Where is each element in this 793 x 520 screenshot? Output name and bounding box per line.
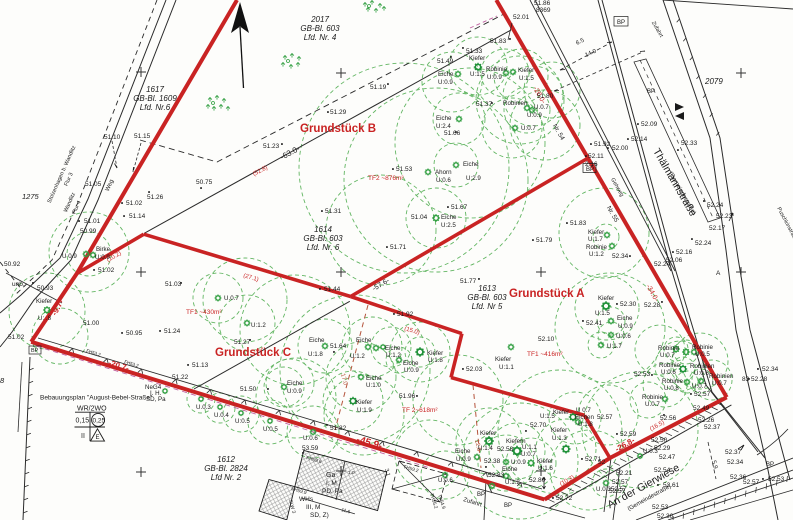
svg-text:U:0.5: U:0.5	[235, 418, 250, 425]
svg-text:Robinien: Robinien	[709, 373, 734, 380]
svg-text:U:0.9: U:0.9	[95, 254, 110, 261]
svg-text:52.14: 52.14	[631, 136, 648, 143]
svg-text:U:0.7: U:0.7	[712, 380, 727, 387]
svg-text:U:0.7: U:0.7	[521, 451, 536, 458]
svg-text:51.49: 51.49	[437, 58, 454, 65]
svg-text:GB-Bl. 2824: GB-Bl. 2824	[204, 464, 248, 473]
svg-text:U:0.9: U:0.9	[404, 367, 419, 374]
svg-text:U:0.9: U:0.9	[618, 323, 633, 330]
svg-text:Eiche: Eiche	[366, 375, 382, 382]
svg-text:Kiefer: Kiefer	[480, 430, 496, 437]
svg-text:52.36: 52.36	[657, 513, 674, 520]
svg-text:51.33: 51.33	[466, 48, 483, 55]
svg-text:52.56: 52.56	[660, 415, 677, 422]
svg-text:U:1.8: U:1.8	[308, 351, 323, 358]
svg-text:51.02: 51.02	[126, 200, 143, 207]
svg-text:52: 52	[598, 459, 606, 466]
svg-text:U:0.3: U:0.3	[643, 448, 658, 455]
svg-text:Lfd. Nr. 6: Lfd. Nr. 6	[307, 243, 340, 252]
svg-text:Grundstück A: Grundstück A	[509, 288, 585, 300]
svg-text:U.1.1: U.1.1	[522, 444, 537, 451]
svg-text:51.22: 51.22	[172, 374, 189, 381]
svg-text:U:1.7: U:1.7	[607, 343, 622, 350]
svg-text:52.03: 52.03	[466, 366, 483, 373]
svg-text:52.28: 52.28	[644, 302, 661, 309]
svg-text:Eiche: Eiche	[463, 161, 479, 168]
svg-text:Kiefer: Kiefer	[36, 298, 52, 305]
svg-text:52.72: 52.72	[556, 495, 573, 502]
svg-text:WHs: WHs	[299, 496, 314, 503]
svg-text:51.37: 51.37	[476, 101, 493, 108]
svg-text:Eiche: Eiche	[403, 360, 419, 367]
svg-text:GB-Bl. 603: GB-Bl. 603	[303, 234, 343, 243]
svg-text:GB-Bl. 1609: GB-Bl. 1609	[133, 94, 177, 103]
svg-text:Bebauungsplan "August-Bebel-St: Bebauungsplan "August-Bebel-Straße"	[40, 395, 153, 402]
svg-text:8369: 8369	[536, 7, 551, 14]
svg-text:1612: 1612	[217, 455, 235, 464]
svg-text:50.99: 50.99	[80, 228, 97, 235]
svg-text:51.53: 51.53	[396, 166, 413, 173]
svg-text:Grundstück B: Grundstück B	[300, 123, 376, 135]
svg-text:50.93: 50.93	[37, 285, 54, 292]
svg-text:TF1 ~430m²: TF1 ~430m²	[186, 309, 222, 316]
svg-text:Kiefer: Kiefer	[598, 295, 614, 302]
svg-text:2017: 2017	[310, 15, 329, 24]
svg-text:52.49: 52.49	[693, 405, 710, 412]
svg-text:TF 2~618m²: TF 2~618m²	[402, 407, 438, 414]
svg-text:51.71: 51.71	[390, 244, 407, 251]
svg-text:Kiefer: Kiefer	[537, 458, 553, 465]
svg-text:52.50: 52.50	[651, 437, 668, 444]
svg-text:Ga: Ga	[326, 472, 335, 479]
svg-text:U:0.7: U:0.7	[660, 352, 675, 359]
svg-text:52.24: 52.24	[707, 202, 724, 209]
svg-text:Robinien: Robinien	[503, 100, 528, 107]
svg-text:51.92: 51.92	[397, 311, 414, 318]
svg-text:52.59: 52.59	[620, 431, 637, 438]
svg-text:SD, Z): SD, Z)	[310, 512, 329, 519]
svg-text:51.23: 51.23	[263, 143, 280, 150]
svg-text:52.00: 52.00	[612, 145, 629, 152]
svg-text:U:1.5: U:1.5	[470, 71, 485, 78]
svg-text:U.0.6: U.0.6	[303, 435, 318, 442]
svg-text:52.53: 52.53	[634, 371, 651, 378]
svg-text:51.26: 51.26	[147, 194, 164, 201]
svg-text:unb.: unb.	[12, 281, 25, 288]
svg-text:PD, Pa: PD, Pa	[322, 488, 343, 495]
svg-text:Eiche: Eiche	[455, 448, 471, 455]
svg-text:U:0.6: U:0.6	[616, 333, 631, 340]
svg-text:51.10: 51.10	[104, 134, 121, 141]
svg-text:52.37: 52.37	[704, 424, 721, 431]
svg-text:U:2.9: U:2.9	[466, 175, 481, 182]
svg-text:52.26: 52.26	[698, 417, 715, 424]
svg-text:U.0.7: U.0.7	[534, 104, 549, 111]
svg-text:Lfd. Nr.6: Lfd. Nr.6	[140, 103, 171, 112]
svg-text:SD, Pa: SD, Pa	[146, 396, 166, 403]
svg-text:BP: BP	[766, 462, 774, 468]
svg-text:52.09: 52.09	[641, 121, 658, 128]
svg-text:Robinie: Robinie	[662, 378, 684, 385]
svg-text:52.54: 52.54	[654, 467, 671, 474]
svg-text:U:2.5: U:2.5	[441, 222, 456, 229]
svg-text:Robinie: Robinie	[642, 394, 664, 401]
svg-text:51.24: 51.24	[164, 328, 181, 335]
svg-text:U:0.6: U:0.6	[438, 477, 453, 484]
svg-text:52.57: 52.57	[597, 414, 613, 421]
svg-text:51.01: 51.01	[84, 218, 101, 225]
svg-text:U:1.2: U:1.2	[251, 322, 266, 329]
svg-text:Lfd. Nr. 4: Lfd. Nr. 4	[304, 33, 337, 42]
svg-text:BP: BP	[477, 492, 485, 498]
svg-text:U:0.9: U:0.9	[456, 456, 471, 463]
svg-text:BP: BP	[647, 89, 655, 95]
svg-text:Kiefer: Kiefer	[588, 229, 604, 236]
svg-text:U:1.4: U:1.4	[478, 445, 493, 452]
svg-text:BP: BP	[617, 20, 625, 26]
svg-text:U.0.4: U.0.4	[214, 412, 229, 419]
svg-text:A: A	[716, 270, 721, 277]
svg-text:Lfd. Nr 5: Lfd. Nr 5	[472, 302, 503, 311]
svg-text:51.27: 51.27	[234, 339, 251, 346]
svg-text:U:1.2: U:1.2	[505, 479, 520, 486]
svg-text:51.82: 51.82	[330, 425, 347, 432]
svg-text:51.31: 51.31	[325, 208, 342, 215]
svg-text:52.57: 52.57	[694, 391, 711, 398]
svg-text:51.77: 51.77	[460, 278, 477, 285]
svg-text:51.83: 51.83	[490, 38, 507, 45]
svg-text:52.38: 52.38	[484, 458, 501, 465]
svg-text:Eiche: Eiche	[309, 337, 325, 344]
svg-text:U:1.8: U:1.8	[578, 421, 593, 428]
svg-text:50.92: 50.92	[4, 261, 21, 268]
svg-text:U:1.8: U:1.8	[428, 357, 443, 364]
svg-text:U.0.7: U.0.7	[645, 401, 660, 408]
svg-text:51.13: 51.13	[192, 362, 209, 369]
svg-text:51.05: 51.05	[85, 181, 102, 188]
svg-text:52.11: 52.11	[588, 153, 604, 160]
svg-text:Eiche: Eiche	[502, 466, 518, 473]
svg-text:BP: BP	[586, 167, 594, 173]
svg-text:GB-Bl. 603: GB-Bl. 603	[467, 293, 507, 302]
svg-text:52.83: 52.83	[488, 472, 505, 479]
svg-text:51.80: 51.80	[537, 93, 554, 100]
svg-text:U.0.3: U.0.3	[196, 404, 211, 411]
svg-text:52.58: 52.58	[497, 446, 514, 453]
svg-text:Birke: Birke	[96, 246, 111, 253]
svg-text:0,15: 0,15	[76, 418, 90, 425]
svg-text:52.37: 52.37	[725, 449, 742, 456]
svg-text:BP: BP	[504, 503, 512, 509]
svg-text:52.10: 52.10	[538, 336, 555, 343]
svg-text:Robinie: Robinie	[586, 244, 608, 251]
svg-text:U:2.4: U:2.4	[436, 123, 451, 130]
svg-text:51.86: 51.86	[534, 0, 551, 7]
svg-text:U 0.7: U 0.7	[576, 407, 591, 414]
svg-text:Kiefer: Kiefer	[356, 399, 372, 406]
svg-text:U:0.7: U:0.7	[692, 383, 707, 390]
svg-text:Eiche: Eiche	[356, 337, 372, 344]
svg-text:52.24: 52.24	[695, 240, 712, 247]
svg-text:52.01: 52.01	[513, 14, 530, 21]
svg-text:52.53: 52.53	[768, 476, 785, 483]
svg-text:52.34: 52.34	[762, 366, 779, 373]
svg-text:U:1.3: U:1.3	[552, 435, 567, 442]
svg-text:Eichen: Eichen	[575, 414, 594, 421]
svg-text:52.17: 52.17	[709, 225, 726, 232]
svg-text:53.59: 53.59	[302, 445, 319, 452]
svg-text:51.44: 51.44	[324, 286, 341, 293]
svg-text:1614: 1614	[314, 225, 332, 234]
svg-text:51.19: 51.19	[370, 84, 387, 91]
svg-text:52.33: 52.33	[681, 140, 698, 147]
svg-text:TF1 ~416m²: TF1 ~416m²	[527, 351, 563, 358]
svg-text:Robinie: Robinie	[659, 362, 681, 369]
svg-text:51.96: 51.96	[399, 393, 416, 400]
svg-text:51.15: 51.15	[134, 133, 151, 140]
svg-text:50.95: 50.95	[126, 330, 143, 337]
svg-text:U:0.9: U:0.9	[527, 112, 542, 119]
svg-text:Grundstück C: Grundstück C	[215, 347, 291, 359]
svg-text:51.04: 51.04	[411, 214, 428, 221]
svg-text:52.57: 52.57	[743, 479, 760, 486]
svg-text:U:1.2: U:1.2	[386, 352, 401, 359]
svg-text:U:1.5: U:1.5	[595, 310, 610, 317]
svg-text:Ahorn: Ahorn	[435, 169, 452, 176]
svg-text:52.57: 52.57	[611, 486, 627, 493]
svg-text:50.75: 50.75	[196, 179, 213, 186]
svg-text:51.79: 51.79	[536, 237, 553, 244]
svg-text:U:1.0: U:1.0	[366, 382, 381, 389]
svg-text:U:0.8: U:0.8	[664, 385, 679, 392]
svg-text:0,25: 0,25	[93, 418, 106, 425]
svg-text:II: II	[81, 433, 85, 440]
svg-text:U:1.5: U:1.5	[540, 413, 555, 420]
svg-text:WR/2WO: WR/2WO	[77, 406, 107, 413]
svg-text:U:0.5: U:0.5	[695, 351, 710, 358]
svg-text:Robinie: Robinie	[486, 66, 508, 73]
svg-text:51.14: 51.14	[129, 213, 146, 220]
svg-text:52.34: 52.34	[612, 253, 629, 260]
svg-text:Eiche: Eiche	[385, 345, 401, 352]
svg-text:III, M: III, M	[306, 504, 320, 511]
svg-text:51.64: 51.64	[330, 343, 347, 350]
svg-text:U:0.7: U:0.7	[521, 125, 536, 132]
svg-text:52.61: 52.61	[663, 482, 680, 489]
svg-text:2079: 2079	[704, 77, 723, 86]
svg-text:U:1.2: U:1.2	[350, 353, 365, 360]
svg-text:52.57: 52.57	[612, 479, 629, 486]
svg-text:51.66: 51.66	[444, 130, 461, 137]
svg-text:51.03: 51.03	[165, 281, 182, 288]
svg-text:51.02: 51.02	[98, 267, 115, 274]
svg-text:U:1.2: U:1.2	[589, 251, 604, 258]
svg-text:52.21: 52.21	[616, 470, 633, 477]
svg-text:52.70: 52.70	[530, 422, 547, 429]
svg-text:I, M: I, M	[326, 480, 337, 487]
svg-text:U:0.6: U:0.6	[694, 370, 709, 377]
svg-text:52.16: 52.16	[676, 249, 693, 256]
svg-text:U:1.7: U:1.7	[588, 236, 603, 243]
svg-text:Eiche: Eiche	[287, 380, 303, 387]
svg-text:52.24: 52.24	[654, 261, 671, 268]
svg-text:Robinie: Robinie	[658, 345, 680, 352]
svg-text:U 0.9: U 0.9	[62, 253, 77, 260]
svg-text:U:0.9: U:0.9	[287, 388, 302, 395]
svg-text:Eiche: Eiche	[617, 315, 633, 322]
svg-text:1617: 1617	[146, 85, 164, 94]
svg-text:Kiefer: Kiefer	[518, 67, 534, 74]
svg-text:Kiefer: Kiefer	[553, 409, 569, 416]
svg-text:51.83: 51.83	[570, 220, 587, 227]
svg-text:51.29: 51.29	[330, 109, 347, 116]
svg-text:U: .8: U: .8	[38, 315, 52, 322]
svg-text:Lfd Nr. 2: Lfd Nr. 2	[211, 473, 242, 482]
svg-text:U:0.9: U:0.9	[487, 74, 502, 81]
svg-text:U:0.6: U:0.6	[436, 177, 451, 184]
svg-text:52.41: 52.41	[586, 320, 603, 327]
svg-text:Eiche: Eiche	[438, 71, 454, 78]
svg-text:1613: 1613	[478, 284, 496, 293]
svg-text:52.47: 52.47	[659, 454, 676, 461]
svg-text:U:1.6: U:1.6	[538, 465, 553, 472]
svg-text:52.34: 52.34	[727, 459, 744, 466]
svg-text:U:0.6: U:0.6	[661, 369, 676, 376]
svg-text:Eiche: Eiche	[436, 115, 452, 122]
svg-text:BP: BP	[31, 348, 39, 354]
svg-text:Robinien: Robinien	[690, 363, 715, 370]
svg-text:51.00: 51.00	[83, 320, 100, 327]
svg-text:1275: 1275	[22, 192, 40, 201]
svg-text:E: E	[96, 435, 100, 441]
svg-text:U:0.5: U:0.5	[263, 426, 278, 433]
svg-text:Robinie: Robinie	[692, 344, 714, 351]
svg-text:Kiefer: Kiefer	[469, 55, 485, 62]
svg-text:U:1.1: U:1.1	[499, 364, 514, 371]
svg-text:52.28: 52.28	[751, 376, 768, 383]
svg-text:U:0.9: U:0.9	[511, 459, 526, 466]
svg-text:51.50: 51.50	[240, 386, 257, 393]
svg-text:Kiefer: Kiefer	[551, 427, 567, 434]
svg-text:GB-Bl. 603: GB-Bl. 603	[300, 24, 340, 33]
svg-text:U:1.5: U:1.5	[519, 75, 534, 82]
svg-text:Eiche: Eiche	[441, 214, 457, 221]
svg-text:Kiefer: Kiefer	[427, 350, 443, 357]
svg-text:1.0: 1.0	[348, 470, 355, 476]
svg-text:U:0.9: U:0.9	[438, 79, 453, 86]
svg-text:TF2 ~876m²: TF2 ~876m²	[368, 175, 404, 182]
svg-text:U.0.7: U.0.7	[224, 295, 239, 302]
svg-text:51.92: 51.92	[594, 141, 611, 148]
svg-text:51.02: 51.02	[8, 334, 25, 341]
svg-text:52.30: 52.30	[620, 301, 637, 308]
svg-text:U:1.9: U:1.9	[357, 407, 372, 414]
svg-text:Kiefer: Kiefer	[495, 356, 511, 363]
svg-text:52.53: 52.53	[652, 504, 669, 511]
svg-text:51.67: 51.67	[451, 204, 468, 211]
svg-text:U.0.3: U.0.3	[596, 486, 611, 493]
